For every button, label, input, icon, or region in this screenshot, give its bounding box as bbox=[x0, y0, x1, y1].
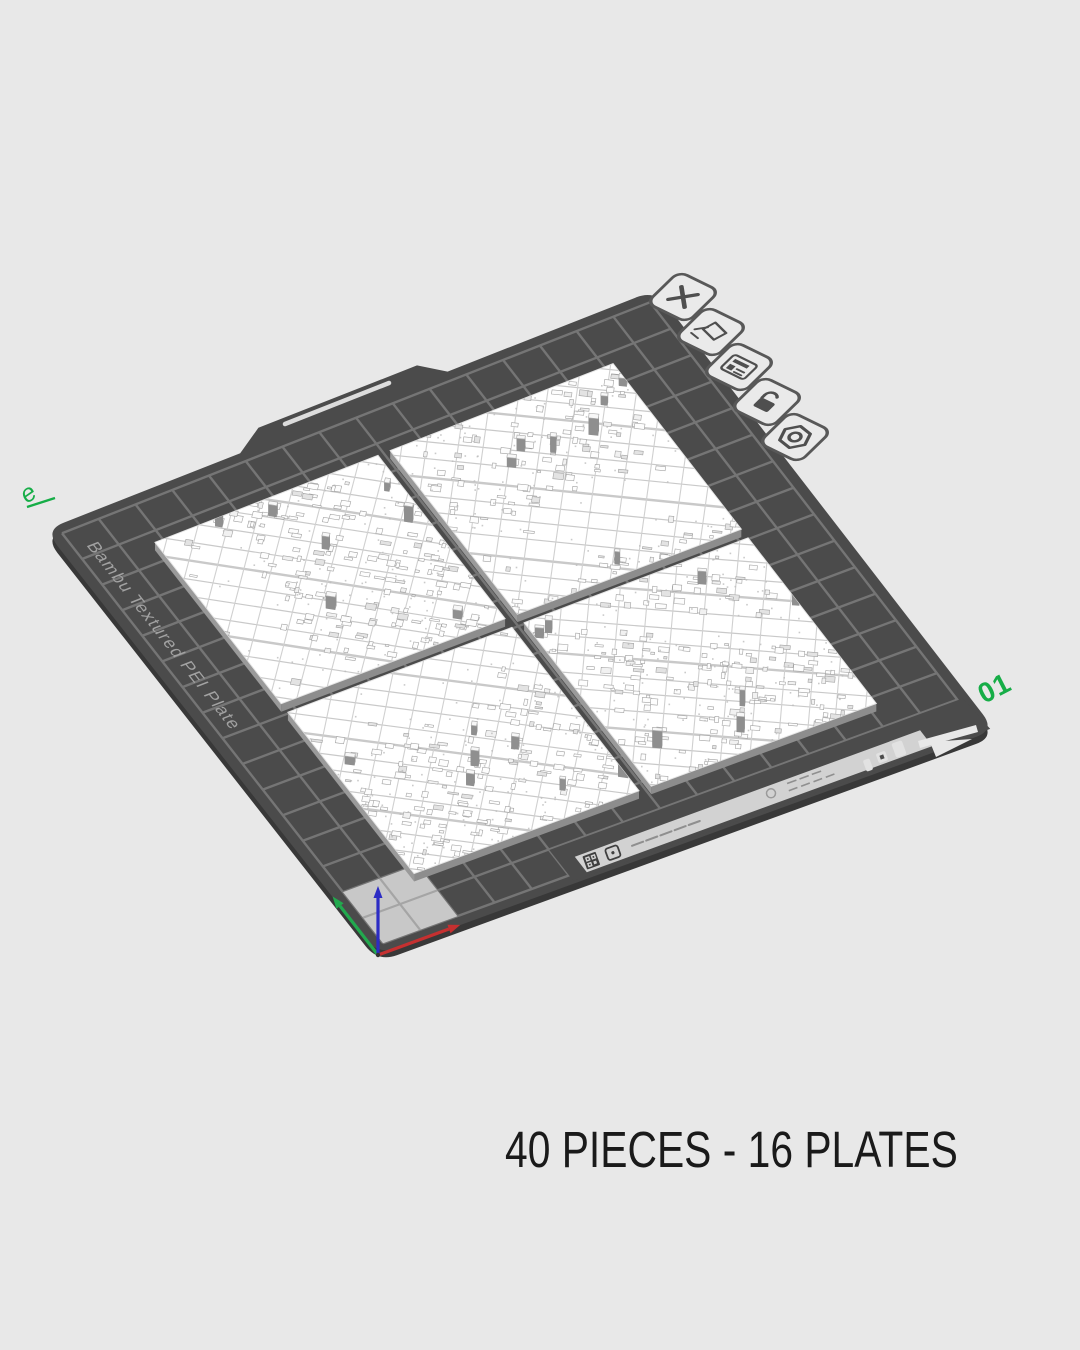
slicer-viewport: Bambu Textured PEI Plate 01 e 40 PIECES … bbox=[0, 0, 1080, 1350]
build-plate[interactable] bbox=[52, 295, 987, 950]
piece-count-caption: 40 PIECES - 16 PLATES bbox=[505, 1120, 958, 1179]
plate-number-label: 01 bbox=[973, 667, 1017, 710]
